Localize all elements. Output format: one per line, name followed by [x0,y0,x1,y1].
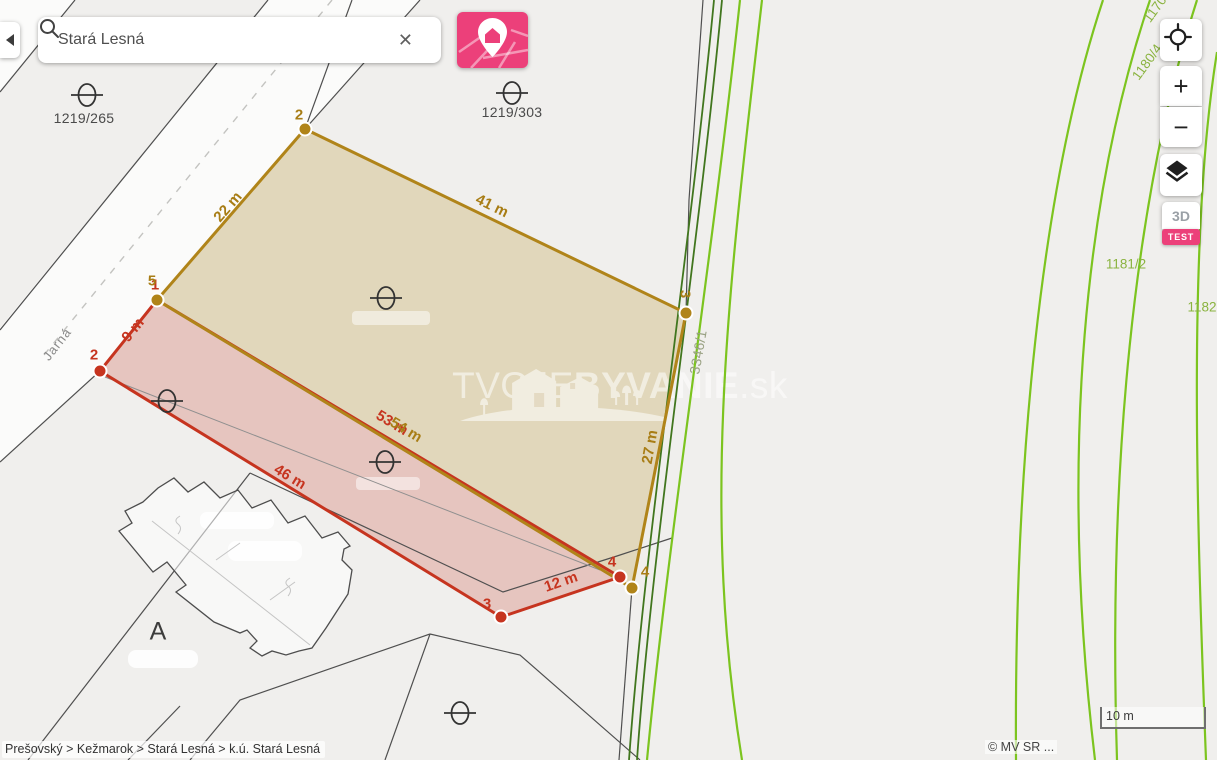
search-input[interactable] [56,30,386,50]
layers-button[interactable] [1160,154,1202,196]
vertex-label: 2 [295,107,303,124]
vertex-label: 5 [148,273,156,290]
parcel-number-label: 1219/303 [482,104,543,120]
parcel-symbol [496,82,528,104]
chevron-left-icon [6,34,14,46]
layers-icon [1160,154,1194,188]
vertex-label: 2 [90,347,98,364]
view-3d-button[interactable]: 3D [1162,202,1200,229]
parcel-symbol [71,84,103,106]
search-bar: ✕ [38,17,441,63]
forest-parcel-lines [647,0,1217,760]
vertex-label: 3 [677,290,694,298]
stream-lines [629,0,722,760]
parcel-number-label: 1181/2 [1106,257,1146,272]
vertex-label: 3 [483,596,491,613]
scale-label: 10 m [1106,709,1134,723]
locate-me-button[interactable] [1160,19,1202,61]
map-canvas[interactable]: TVOJEBYVANIE.sk [0,0,1217,760]
courtyard-symbol: A [150,618,167,647]
parcel-number-label: 1182 [1187,300,1216,315]
parcel-symbol [444,702,476,724]
zoom-out-button[interactable]: − [1160,107,1202,147]
parcel-number-label: 1219/265 [54,110,115,126]
map-lines-layer [0,0,1217,760]
locate-icon [1160,19,1196,55]
collapse-panel-button[interactable] [0,22,20,58]
breadcrumb[interactable]: Prešovský > Kežmarok > Stará Lesná > k.ú… [2,741,325,758]
clear-search-icon[interactable]: ✕ [386,30,425,51]
scale-bar: 10 m [1100,707,1206,729]
parcel-symbol [151,390,183,412]
parcel-symbol [370,287,402,309]
vertex-label: 4 [608,554,616,571]
parcel-symbol [369,451,401,473]
test-badge: TEST [1162,229,1200,245]
vertex-label: 4 [641,564,649,581]
map-style-button[interactable] [457,12,528,68]
map-attribution: © MV SR ... [985,740,1057,754]
zoom-in-button[interactable]: + [1160,66,1202,106]
map-pin-icon [457,12,528,68]
